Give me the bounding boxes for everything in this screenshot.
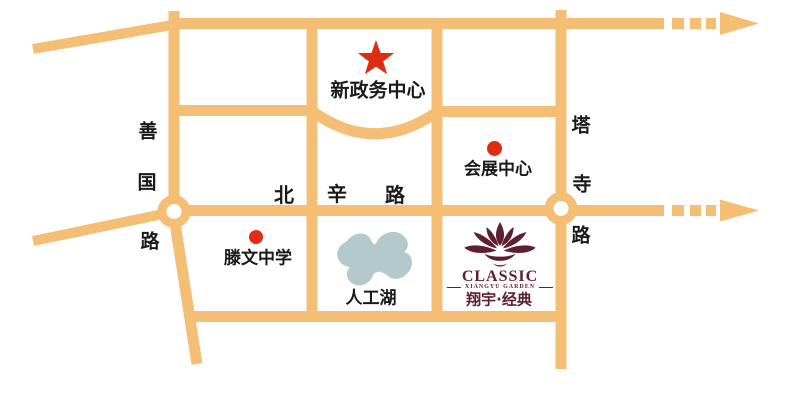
road-label-tasi-char-3: 路 bbox=[571, 227, 590, 246]
road-label-shanguo-char-1: 善 bbox=[138, 123, 157, 142]
label-artificial-lake: 人工湖 bbox=[346, 291, 397, 308]
road-label-shanguo-char-2: 国 bbox=[137, 174, 156, 193]
tengwen-school-dot-icon bbox=[249, 230, 263, 244]
lotus-logo-icon bbox=[464, 222, 536, 272]
road-label-tasi-char-1: 塔 bbox=[571, 117, 590, 136]
road-dash bbox=[690, 205, 701, 216]
road-diagonal-northwest bbox=[33, 24, 178, 49]
roundabout-east bbox=[549, 197, 573, 221]
road-dash bbox=[706, 205, 716, 216]
label-new-government-center: 新政务中心 bbox=[330, 82, 425, 101]
road-dash bbox=[690, 18, 701, 29]
label-convention-center: 会展中心 bbox=[464, 162, 532, 179]
location-map: 新政务中心 会展中心 滕文中学 人工湖 善 国 路 北 辛 路 塔 寺 路 CL… bbox=[0, 0, 800, 400]
arrow-east-top-icon bbox=[720, 12, 759, 35]
arrow-east-middle-icon bbox=[720, 200, 759, 222]
convention-center-dot-icon bbox=[487, 141, 502, 156]
road-label-beixin-char-3: 路 bbox=[385, 185, 405, 205]
roundabout-west bbox=[162, 200, 186, 224]
road-dash bbox=[672, 205, 684, 216]
logo-brand-cn: 翔宇·经典 bbox=[466, 289, 532, 310]
label-tengwen-middle-school: 滕文中学 bbox=[224, 251, 292, 268]
lake-shape bbox=[337, 232, 412, 286]
road-shanguo-lower-slant bbox=[173, 210, 197, 364]
star-icon bbox=[358, 40, 394, 74]
road-dash bbox=[706, 18, 716, 29]
road-dash bbox=[672, 18, 684, 29]
road-label-beixin-char-2: 辛 bbox=[327, 184, 347, 204]
road-label-tasi-char-2: 寺 bbox=[572, 176, 591, 195]
road-curve-segment bbox=[312, 111, 437, 134]
road-label-shanguo-char-3: 路 bbox=[140, 233, 159, 252]
road-label-beixin-char-1: 北 bbox=[274, 185, 294, 205]
